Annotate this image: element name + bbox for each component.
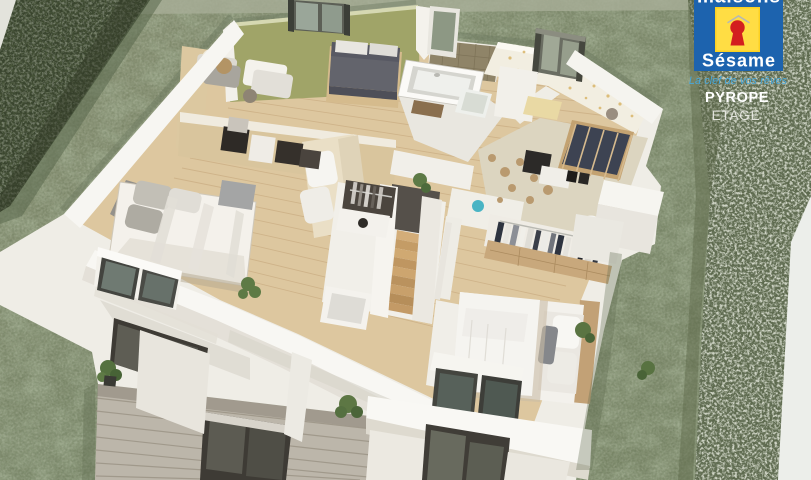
svg-text:ETAGE: ETAGE bbox=[712, 108, 761, 123]
svg-text:PYROPE: PYROPE bbox=[705, 90, 769, 106]
svg-text:Sésame: Sésame bbox=[702, 51, 776, 71]
svg-text:La clef de vos rêves: La clef de vos rêves bbox=[689, 75, 788, 87]
svg-text:maisons: maisons bbox=[697, 0, 781, 8]
